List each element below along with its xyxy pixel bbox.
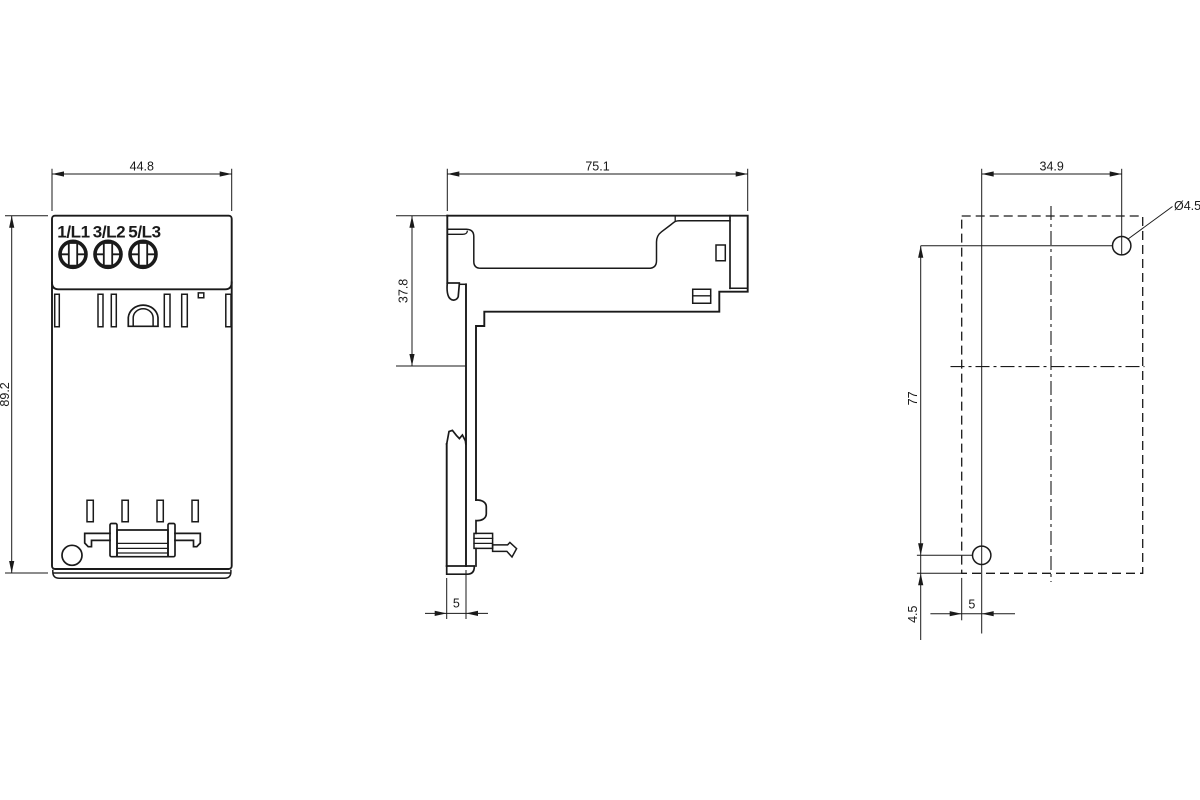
dimension-value: 77 [906, 391, 920, 405]
hole-diameter-label: Ø4.5 [1174, 199, 1200, 213]
dimension-value: 89.2 [0, 382, 12, 406]
terminal-screw-1 [60, 241, 86, 267]
terminal-label-1: 1/L1 [57, 223, 89, 242]
dimension-value: 37.8 [397, 279, 411, 303]
screw-slot [69, 243, 77, 266]
background [0, 0, 1200, 800]
drawing-canvas: 1/L1 3/L2 5/L3 [0, 0, 1200, 800]
dimension-value: 5 [453, 597, 460, 611]
dimension-value: 75.1 [585, 160, 609, 174]
dimension-value: 5 [968, 598, 975, 612]
screw-slot [139, 243, 147, 266]
dimension-value: 44.8 [130, 160, 154, 174]
terminal-screw-3 [130, 241, 156, 267]
dimension-value: 4.5 [906, 605, 920, 622]
screw-slot [104, 243, 112, 266]
terminal-screw-2 [95, 241, 121, 267]
dimension-drawing: 1/L1 3/L2 5/L3 [0, 0, 1200, 800]
dimension-value: 34.9 [1040, 160, 1064, 174]
terminal-label-2: 3/L2 [93, 223, 125, 242]
terminal-label-3: 5/L3 [128, 223, 160, 242]
